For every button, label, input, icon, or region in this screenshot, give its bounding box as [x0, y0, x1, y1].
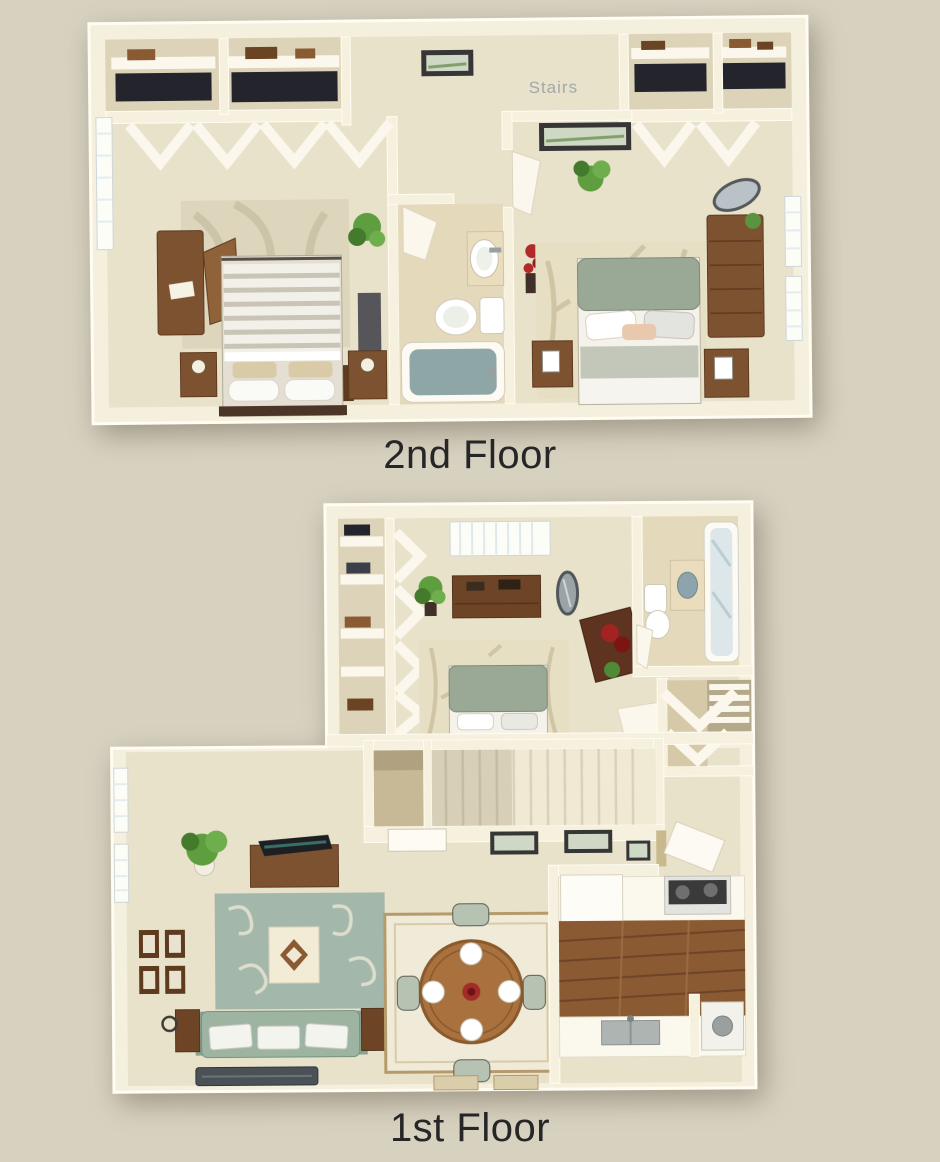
staircase: [364, 738, 665, 855]
bed: [577, 257, 701, 404]
armoire: [157, 231, 204, 335]
shower-tub: [704, 522, 739, 662]
nightstand-left: [532, 341, 572, 387]
nightstand-left: [180, 352, 216, 396]
stove: [665, 876, 731, 914]
kitchen: [548, 864, 746, 1083]
bathtub: [401, 341, 505, 402]
second-floor-svg: Stairs: [83, 8, 817, 431]
utility-closet: [689, 994, 743, 1056]
first-floor-plan: [100, 496, 774, 1116]
window-lower: [786, 276, 803, 340]
door-frame: [656, 830, 666, 866]
first-floor-svg: [100, 496, 774, 1111]
bed: [217, 255, 347, 416]
window-blinds: [450, 521, 550, 556]
gray-headboard: [449, 665, 547, 712]
tv-console: [250, 835, 338, 888]
bathroom: [398, 203, 505, 404]
bed: [449, 665, 548, 738]
gray-cabinet: [358, 293, 382, 351]
tall-dresser: [707, 213, 764, 338]
refrigerator: [560, 875, 622, 925]
toilet: [435, 297, 504, 335]
first-floor-label: 1st Floor: [0, 1106, 940, 1151]
stairs-watermark: Stairs: [528, 78, 578, 98]
nightstand-right: [348, 351, 387, 399]
sage-headboard: [577, 257, 700, 310]
dresser: [452, 575, 540, 618]
under-stair-door: [388, 829, 446, 851]
nightstand-right: [704, 349, 749, 397]
coffee-table: [269, 927, 319, 983]
floor-mat-1: [434, 1076, 478, 1090]
dining-area: [385, 903, 558, 1090]
second-floor-label: 2nd Floor: [0, 433, 940, 478]
vanity-sink: [670, 560, 704, 610]
window-2: [114, 844, 128, 902]
second-floor-plan: Stairs: [83, 8, 817, 436]
sofa: [195, 1010, 367, 1057]
window: [96, 118, 113, 250]
headboard: [219, 405, 347, 416]
floor-mat-2: [494, 1075, 538, 1089]
